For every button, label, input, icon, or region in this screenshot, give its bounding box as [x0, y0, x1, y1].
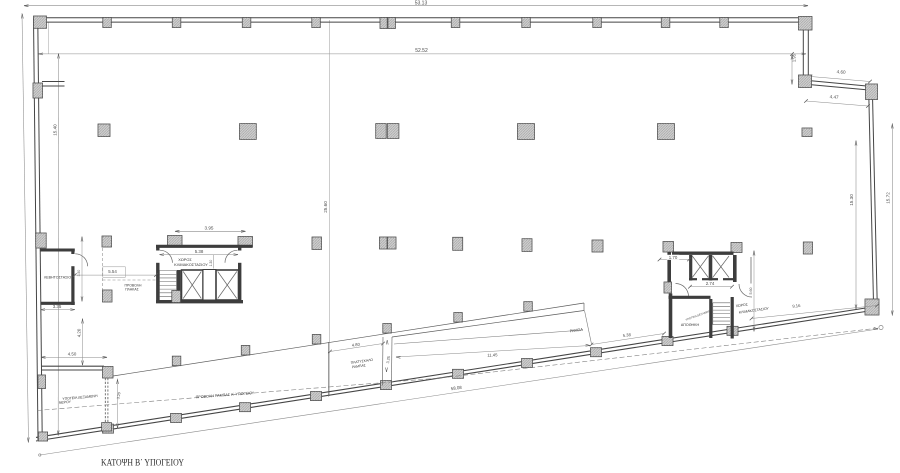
svg-text:4.50: 4.50	[68, 351, 77, 356]
svg-text:25.60: 25.60	[323, 201, 328, 213]
svg-text:4.47: 4.47	[829, 94, 839, 100]
svg-text:ΑΠΟΘΗΚΗ: ΑΠΟΘΗΚΗ	[681, 323, 700, 327]
svg-text:52.52: 52.52	[415, 48, 428, 54]
svg-text:1.30: 1.30	[209, 260, 213, 267]
svg-text:15.72: 15.72	[885, 192, 890, 204]
svg-text:15.30: 15.30	[849, 194, 854, 206]
svg-text:5.54: 5.54	[108, 269, 117, 274]
svg-text:5.60: 5.60	[749, 288, 753, 295]
svg-text:11.45: 11.45	[487, 352, 498, 358]
svg-text:15.40: 15.40	[53, 124, 58, 136]
svg-text:9.16: 9.16	[792, 303, 801, 309]
svg-text:1.70: 1.70	[669, 255, 678, 260]
svg-text:53.13: 53.13	[415, 0, 428, 6]
svg-text:4.60: 4.60	[836, 69, 846, 75]
svg-text:ΛΕΒΗΤΟΣΤΑΣΙΟ: ΛΕΒΗΤΟΣΤΑΣΙΟ	[44, 275, 71, 279]
svg-text:ΚΑΤΟΨΗ Β΄ ΥΠΟΓΕΙΟΥ: ΚΑΤΟΨΗ Β΄ ΥΠΟΓΕΙΟΥ	[101, 458, 184, 469]
svg-text:2.74: 2.74	[706, 281, 715, 286]
svg-text:1.95: 1.95	[792, 53, 797, 62]
svg-text:3.35: 3.35	[53, 304, 62, 309]
svg-text:ΚΛΙΜΑΚΟΣΤΑΣΙΟΥ: ΚΛΙΜΑΚΟΣΤΑΣΙΟΥ	[174, 262, 208, 267]
svg-text:ΠΛΑΚΑΣ: ΠΛΑΚΑΣ	[125, 288, 139, 292]
svg-text:5.38: 5.38	[195, 249, 204, 254]
svg-text:4.20: 4.20	[76, 328, 81, 337]
svg-text:3.95: 3.95	[205, 226, 214, 231]
